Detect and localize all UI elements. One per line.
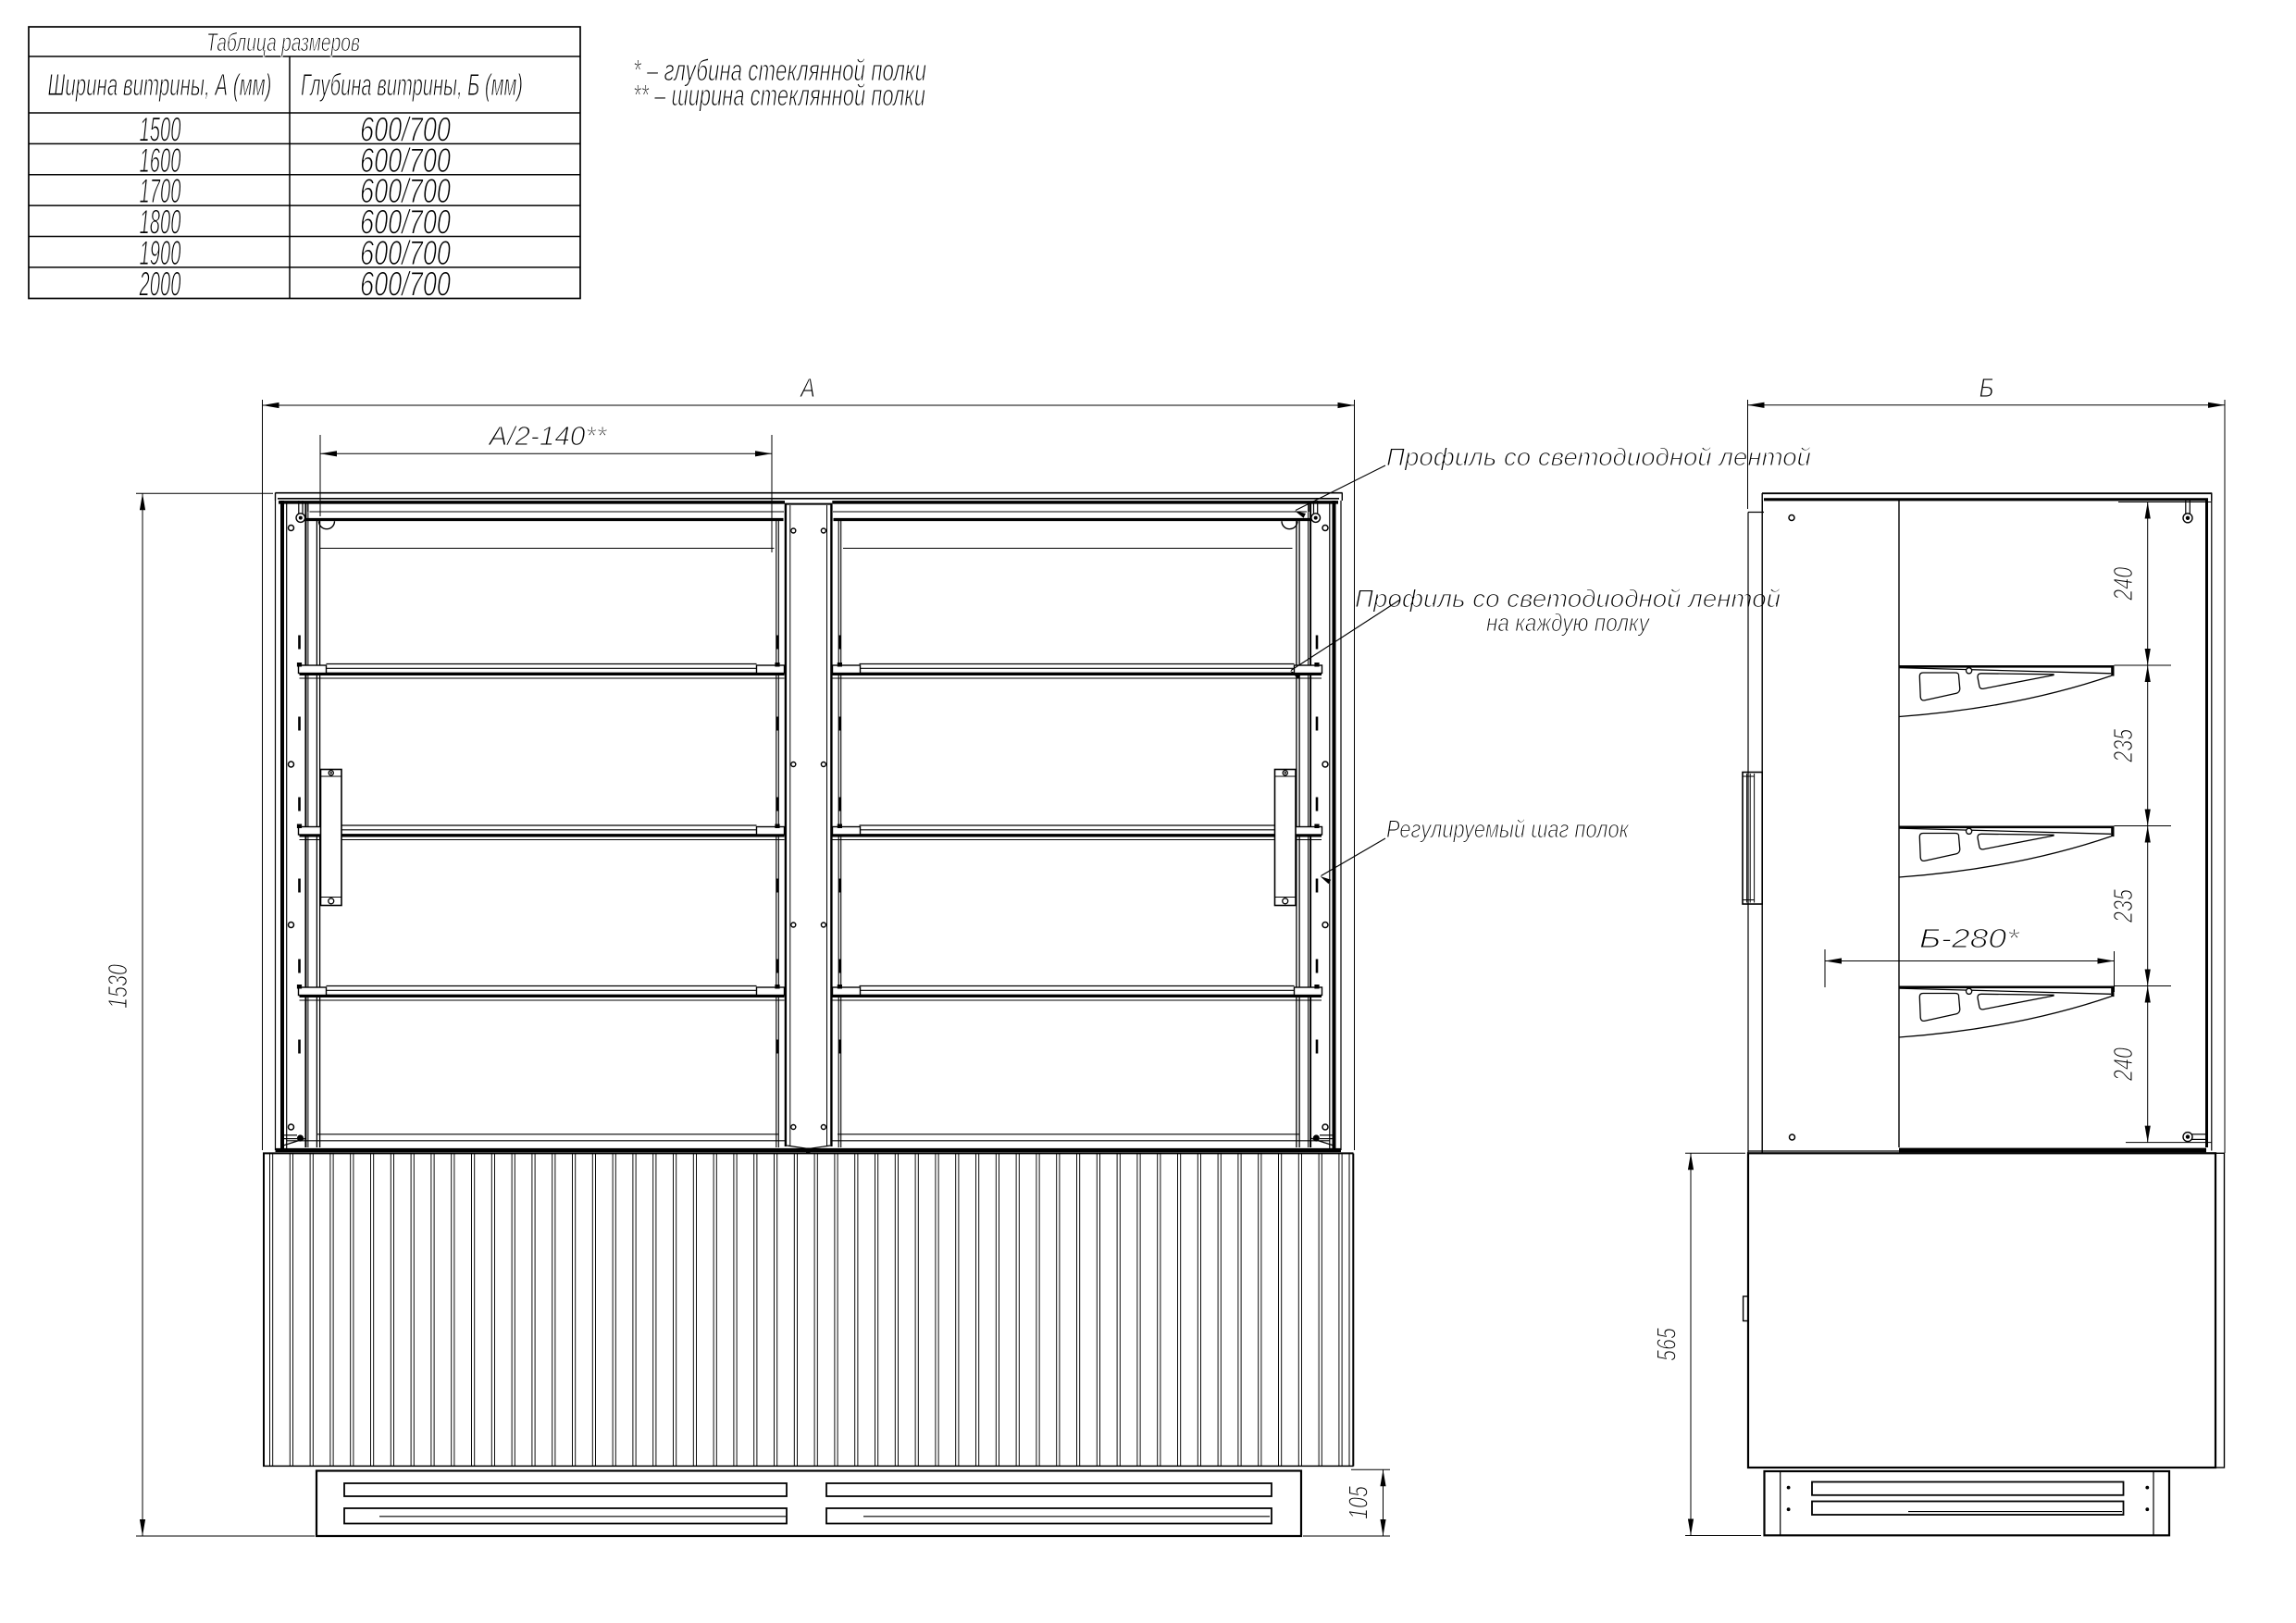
svg-text:Регулируемый шаг полок: Регулируемый шаг полок <box>1386 815 1630 843</box>
svg-text:105: 105 <box>1345 1485 1374 1519</box>
svg-text:** – ширина стеклянной полки: ** – ширина стеклянной полки <box>633 79 925 112</box>
svg-text:Б-280*: Б-280* <box>1919 924 2021 954</box>
svg-text:240: 240 <box>2109 1047 2139 1082</box>
svg-text:Ширина витрины, А (мм): Ширина витрины, А (мм) <box>48 68 272 102</box>
svg-text:Таблица размеров: Таблица размеров <box>206 28 360 56</box>
svg-text:240: 240 <box>2109 567 2139 601</box>
svg-text:235: 235 <box>2109 728 2139 762</box>
svg-text:565: 565 <box>1653 1327 1682 1361</box>
svg-text:A/2-140**: A/2-140** <box>487 422 608 452</box>
svg-text:600/700: 600/700 <box>360 265 451 303</box>
svg-text:на каждую полку: на каждую полку <box>1486 609 1650 637</box>
svg-text:Б: Б <box>1980 374 1994 403</box>
svg-text:1530: 1530 <box>104 964 133 1009</box>
svg-text:235: 235 <box>2109 888 2139 923</box>
svg-text:2000: 2000 <box>139 265 181 303</box>
svg-text:A: A <box>799 374 815 403</box>
svg-text:Глубина витрины, Б (мм): Глубина витрины, Б (мм) <box>301 68 523 102</box>
